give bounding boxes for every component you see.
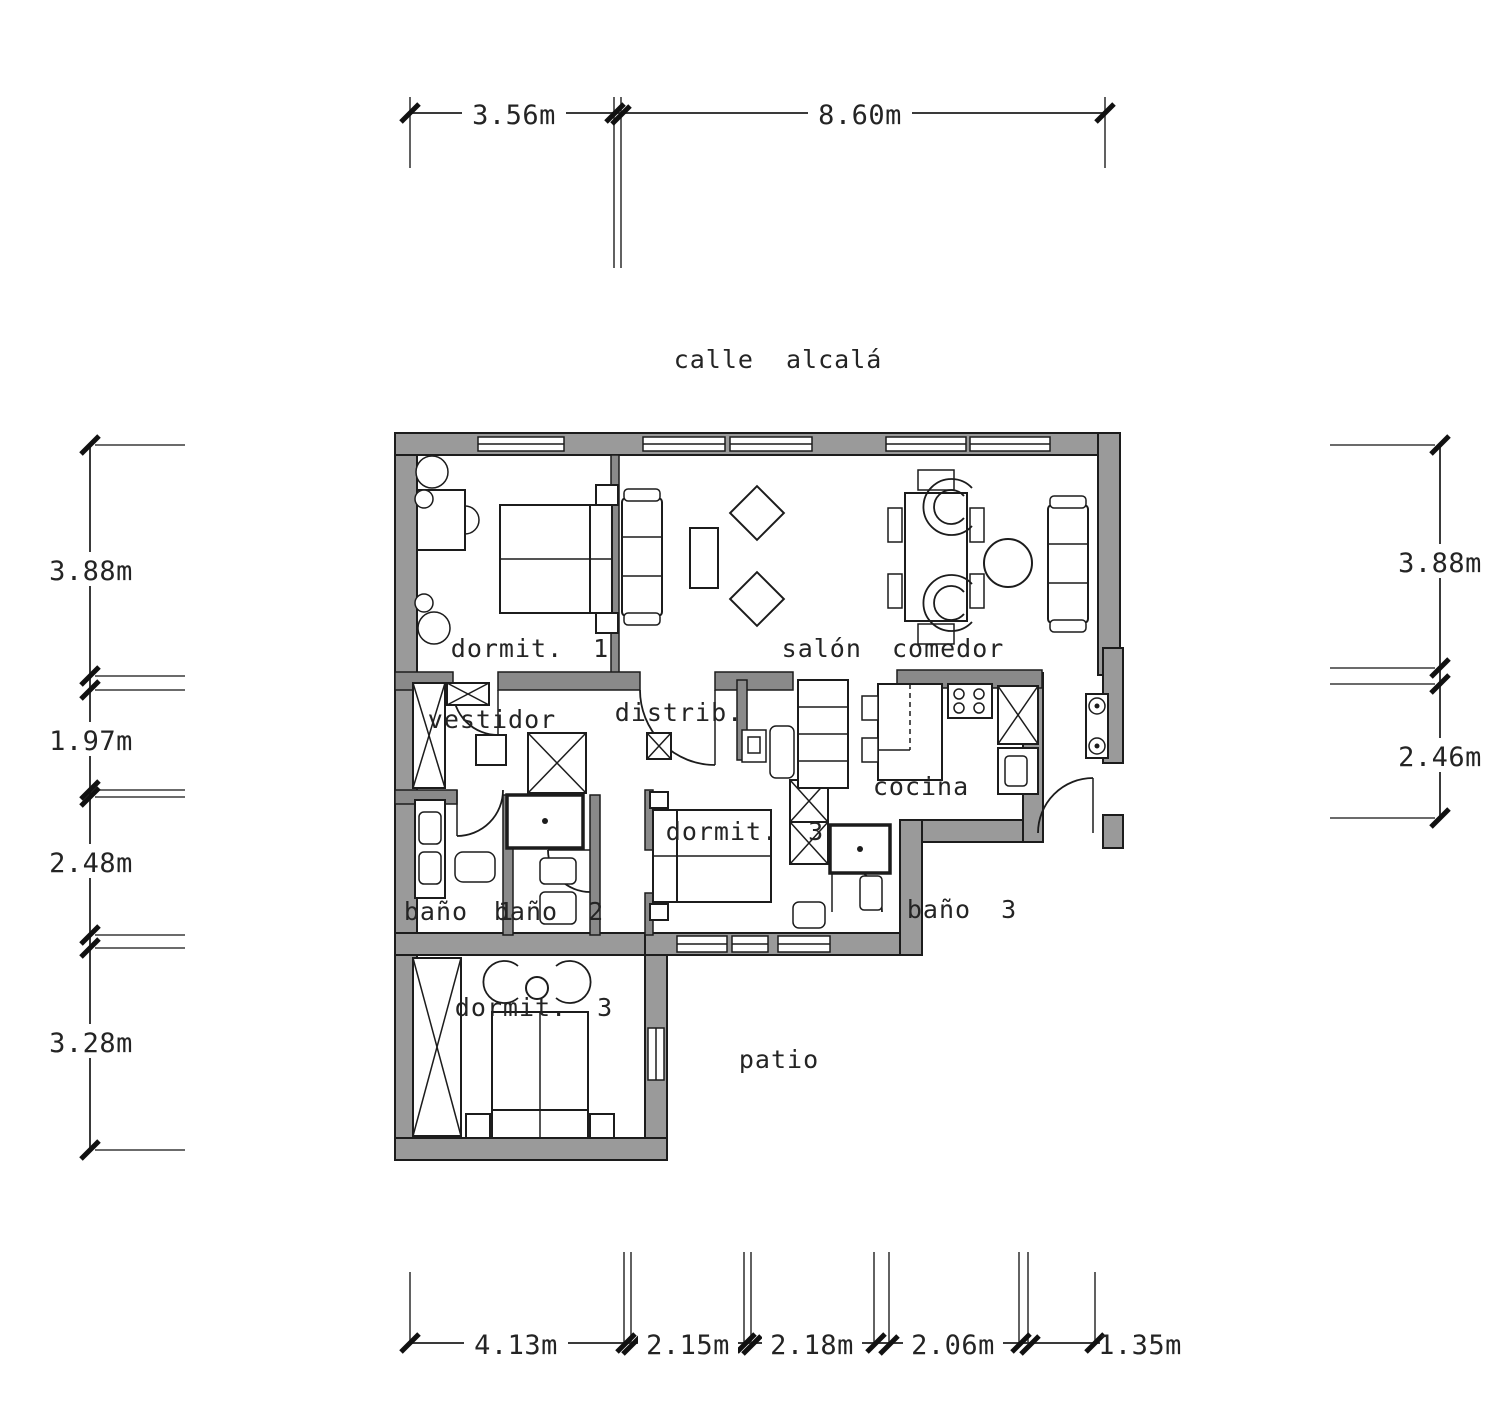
- shower-bano3: [830, 825, 890, 873]
- dimension-chain-bottom: 4.13m 2.15m 2.18m 2.06m 1.35m: [401, 1252, 1182, 1361]
- dormit3-bottom-furniture: [466, 961, 614, 1138]
- wardrobe-distrib-column: [528, 733, 586, 793]
- dim-bottom-0-label: 4.13m: [474, 1330, 558, 1361]
- facade-windows: [478, 437, 1050, 451]
- wardrobe-dormit3-bottom: [413, 958, 461, 1136]
- room-label-dormit1: dormit. 1: [451, 634, 609, 663]
- dim-top-0-label: 3.56m: [472, 100, 556, 131]
- dim-left-1-label: 1.97m: [49, 726, 133, 757]
- shower-bano2: [507, 795, 583, 848]
- coffee-table: [690, 528, 718, 588]
- room-label-bano2: baño 2: [494, 897, 604, 926]
- entry-radiator: [1086, 694, 1108, 758]
- dormit1-furniture: [415, 456, 618, 644]
- bed-dormit3-mid: [650, 792, 771, 920]
- bano1-fixtures: [415, 800, 495, 898]
- dim-bottom-2-label: 2.18m: [770, 1330, 854, 1361]
- room-label-bano3: baño 3: [907, 895, 1017, 924]
- room-label-salon: salón comedor: [782, 634, 1005, 663]
- stove: [948, 684, 992, 718]
- distrib-console: [742, 726, 794, 778]
- bed-dormit3-bottom: [466, 1012, 614, 1138]
- dim-bottom-3-label: 2.06m: [911, 1330, 995, 1361]
- dim-right-0-label: 3.88m: [1398, 548, 1482, 579]
- dim-left-0-label: 3.88m: [49, 556, 133, 587]
- dim-right-1-label: 2.46m: [1398, 742, 1482, 773]
- bed-dormit1: [500, 485, 618, 633]
- salon-furniture: [622, 470, 1088, 644]
- wardrobe-distrib-small: [647, 733, 671, 759]
- room-label-vestidor: vestidor: [428, 705, 556, 734]
- dim-left-3-label: 3.28m: [49, 1028, 133, 1059]
- room-label-distrib: distrib.: [615, 698, 743, 727]
- toilet-bano1: [455, 852, 495, 882]
- wardrobe-vestidor-left: [413, 683, 445, 788]
- dimension-chain-right: 3.88m 2.46m: [1330, 436, 1494, 827]
- dining-table: [888, 470, 984, 644]
- floor-plan-canvas: 3.56m 8.60m 3.88m 1.97m 2.48m 3.28m: [0, 0, 1500, 1417]
- armchair-2: [730, 572, 784, 626]
- sofa-right: [1048, 496, 1088, 632]
- room-label-dormit3-mid: dormit. 3: [666, 817, 824, 846]
- plant-corner-bottom: [415, 594, 450, 644]
- vestidor-stool: [476, 735, 506, 765]
- bano3-fixtures: [793, 876, 882, 928]
- room-label-cocina: cocina: [873, 772, 969, 801]
- dimension-chain-left: 3.88m 1.97m 2.48m 3.28m: [38, 436, 185, 1159]
- floor-plan-page: 3.56m 8.60m 3.88m 1.97m 2.48m 3.28m: [0, 0, 1500, 1417]
- street-label: calle alcalá: [674, 345, 883, 374]
- wardrobe-vestidor-top: [447, 683, 489, 705]
- sofa-left: [622, 489, 662, 625]
- fridge: [998, 748, 1038, 794]
- round-side-table: [984, 539, 1032, 587]
- dim-bottom-1-label: 2.15m: [646, 1330, 730, 1361]
- dim-left-2-label: 2.48m: [49, 848, 133, 879]
- dim-top-1-label: 8.60m: [818, 100, 902, 131]
- armchair-1: [730, 486, 784, 540]
- shelving-column: [798, 680, 848, 788]
- dimension-chain-top: 3.56m 8.60m: [401, 96, 1114, 268]
- room-label-patio: patio: [739, 1045, 819, 1074]
- room-label-dormit3-bottom: dormit. 3: [455, 993, 613, 1022]
- wardrobe-cocina-tall: [998, 686, 1038, 744]
- dim-bottom-4-label: 1.35m: [1098, 1330, 1182, 1361]
